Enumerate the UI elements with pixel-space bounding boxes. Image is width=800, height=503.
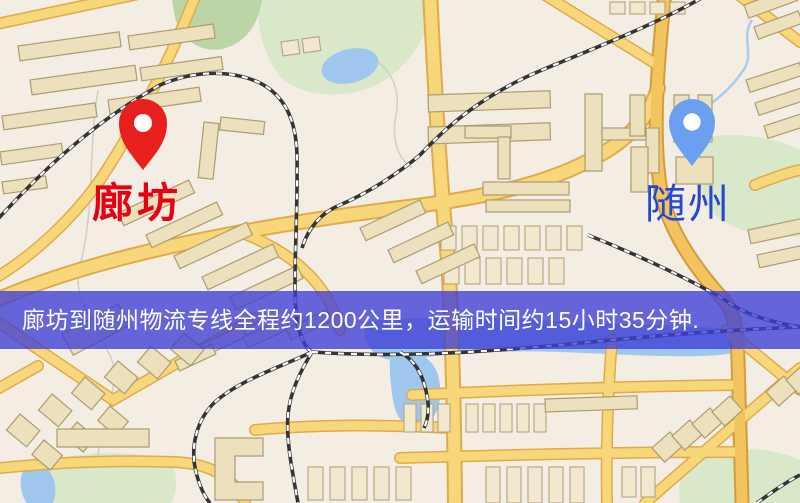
route-info-banner: 廊坊到随州物流专线全程约1200公里，运输时间约15小时35分钟. <box>0 291 800 349</box>
origin-label: 廊坊 <box>92 180 182 226</box>
map-image: 廊坊 随州 <box>0 0 800 503</box>
route-info-text: 廊坊到随州物流专线全程约1200公里，运输时间约15小时35分钟. <box>22 307 699 333</box>
map-screenshot: 廊坊 随州 廊坊到随州物流专线全程约1200公里，运输时间约15小时35分钟. <box>0 0 800 503</box>
destination-label: 随州 <box>645 181 731 227</box>
